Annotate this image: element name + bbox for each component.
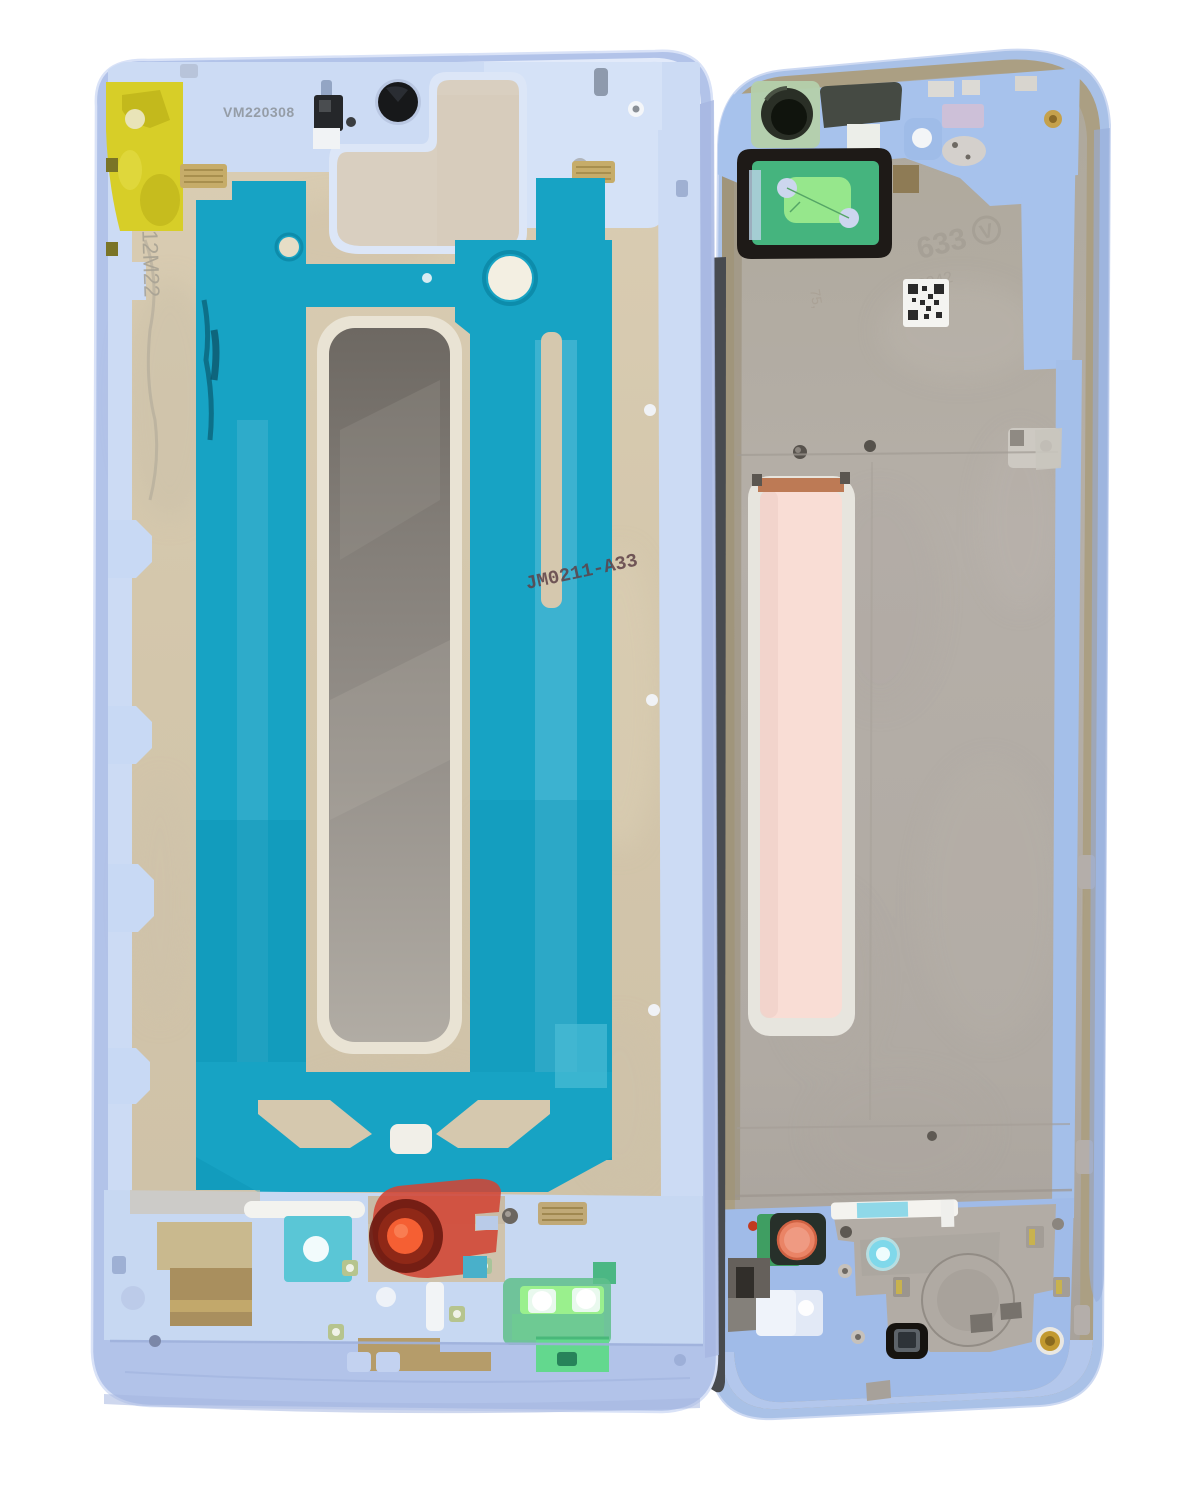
svg-text:75﻿﻿,: 75﻿﻿, — [807, 288, 826, 310]
svg-text:VM220308: VM220308 — [223, 104, 295, 120]
